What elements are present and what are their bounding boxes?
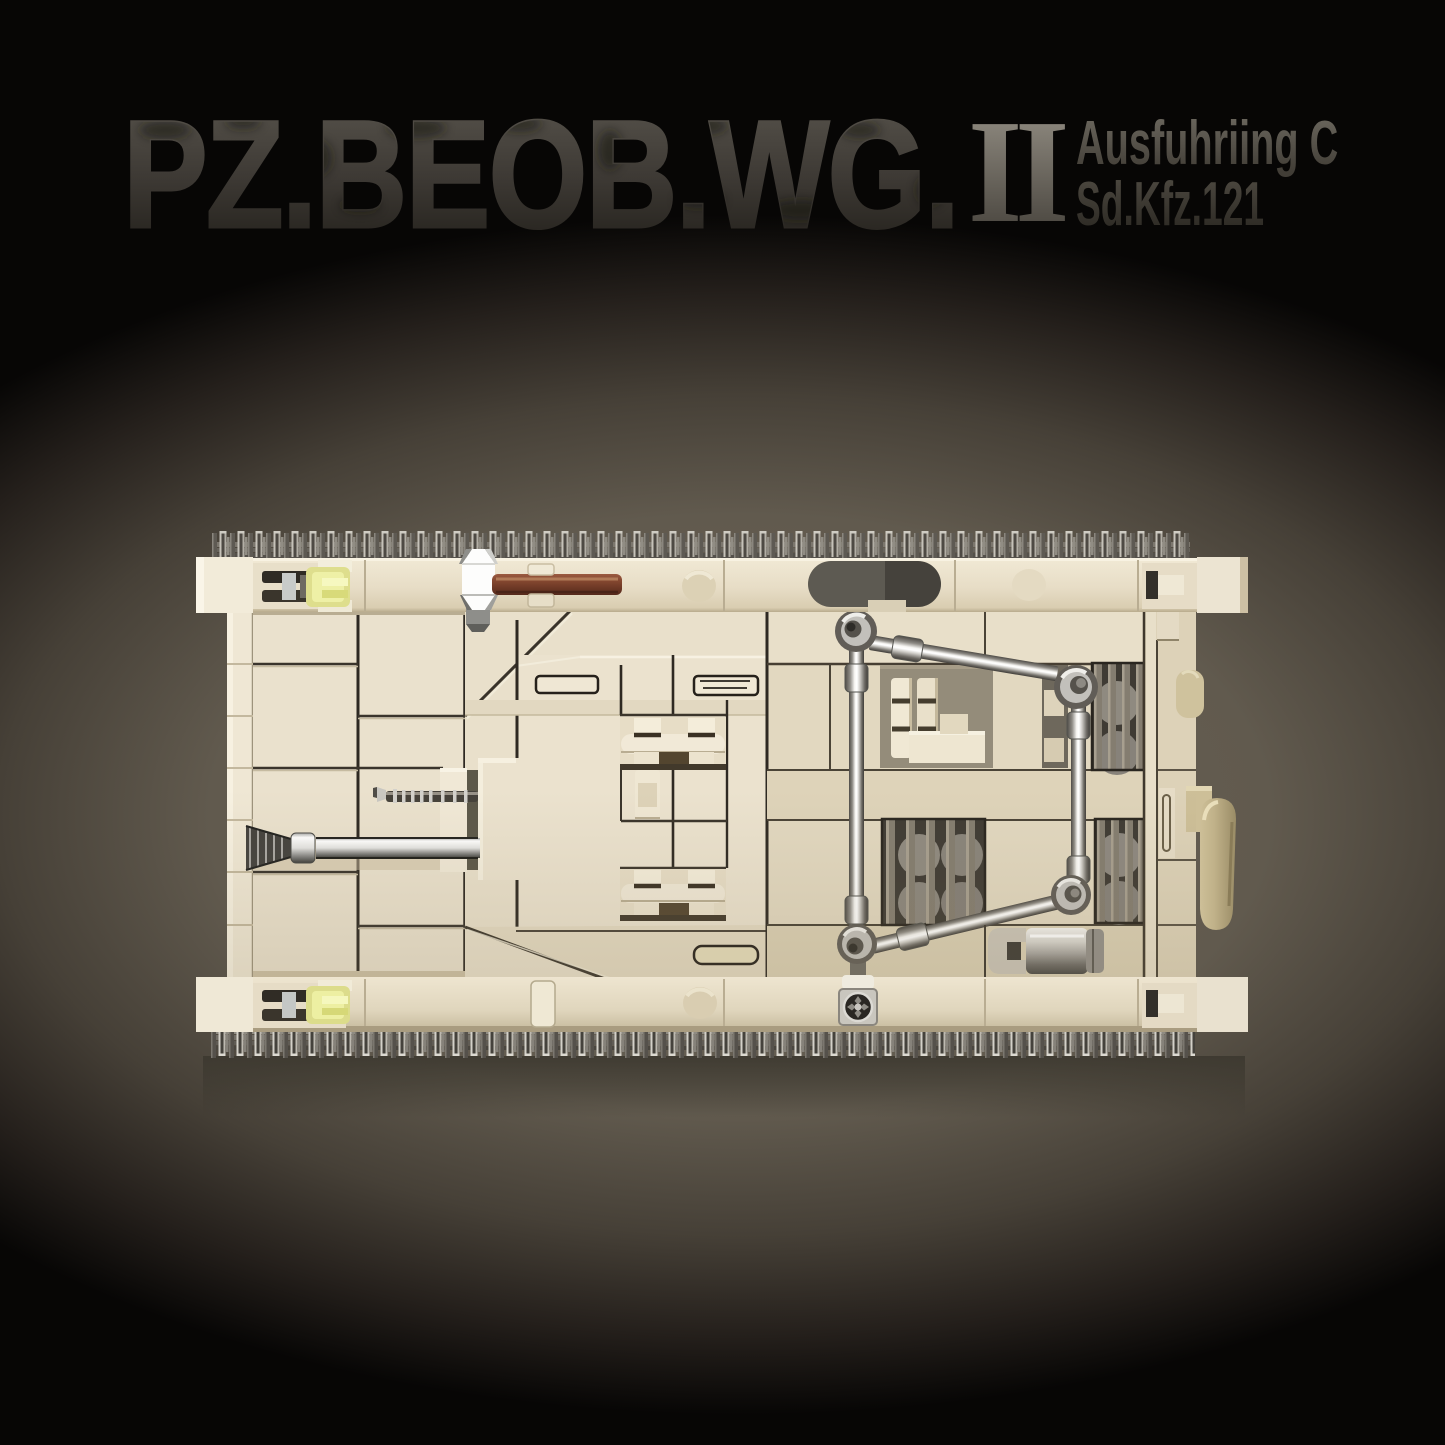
svg-text:Ausfuhriing C: Ausfuhriing C [1076, 109, 1338, 178]
svg-text:PZ.BEOB.WG.: PZ.BEOB.WG. [123, 89, 958, 260]
svg-text:II: II [968, 90, 1066, 254]
svg-text:Sd.Kfz.121: Sd.Kfz.121 [1076, 169, 1264, 238]
